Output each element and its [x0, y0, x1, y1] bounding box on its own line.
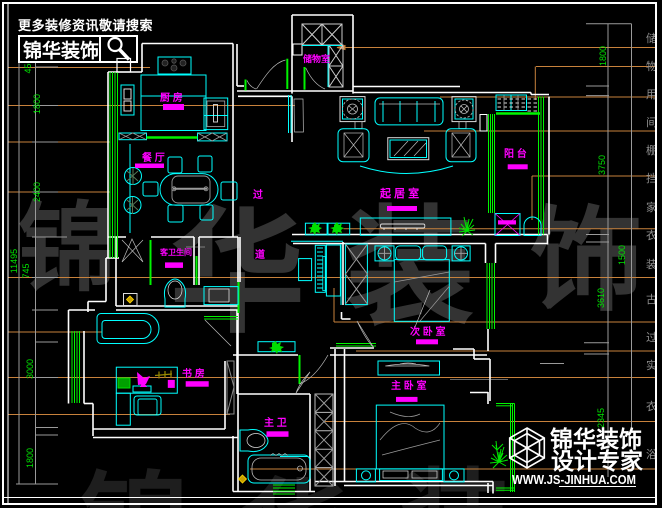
svg-text:745: 745 — [21, 263, 31, 278]
svg-text:设计专家: 设计专家 — [551, 448, 643, 474]
svg-text:阳 台: 阳 台 — [504, 147, 527, 160]
svg-text:1800: 1800 — [598, 46, 608, 66]
svg-text:过: 过 — [253, 188, 263, 201]
svg-text:储物室: 储物室 — [303, 53, 330, 64]
svg-text:锦华装饰: 锦华装饰 — [23, 39, 99, 62]
svg-text:客卫生间: 客卫生间 — [159, 247, 192, 257]
svg-text:主 卫: 主 卫 — [264, 416, 287, 429]
svg-text:11495: 11495 — [9, 249, 19, 273]
svg-text:主 卧 室: 主 卧 室 — [391, 379, 427, 392]
svg-text:WWW.JS-JINHUA.COM: WWW.JS-JINHUA.COM — [512, 473, 636, 487]
svg-text:道: 道 — [255, 248, 265, 261]
svg-text:3750: 3750 — [597, 155, 607, 175]
svg-text:3610: 3610 — [596, 288, 606, 308]
svg-text:3000: 3000 — [25, 359, 35, 379]
svg-text:2400: 2400 — [32, 182, 42, 202]
svg-text:更多装修资讯敬请搜索: 更多装修资讯敬请搜索 — [18, 18, 153, 33]
svg-text:起 居 室: 起 居 室 — [379, 186, 419, 200]
svg-text:锦: 锦 — [80, 464, 190, 508]
svg-text:1800: 1800 — [25, 448, 35, 468]
svg-text:2345: 2345 — [596, 408, 606, 428]
svg-text:1500: 1500 — [617, 245, 627, 265]
svg-text:书 房: 书 房 — [182, 367, 205, 380]
svg-text:厨 房: 厨 房 — [160, 91, 183, 104]
svg-text:餐 厅: 餐 厅 — [141, 151, 165, 164]
svg-text:1800: 1800 — [32, 94, 42, 114]
svg-text:锦: 锦 — [18, 194, 115, 303]
